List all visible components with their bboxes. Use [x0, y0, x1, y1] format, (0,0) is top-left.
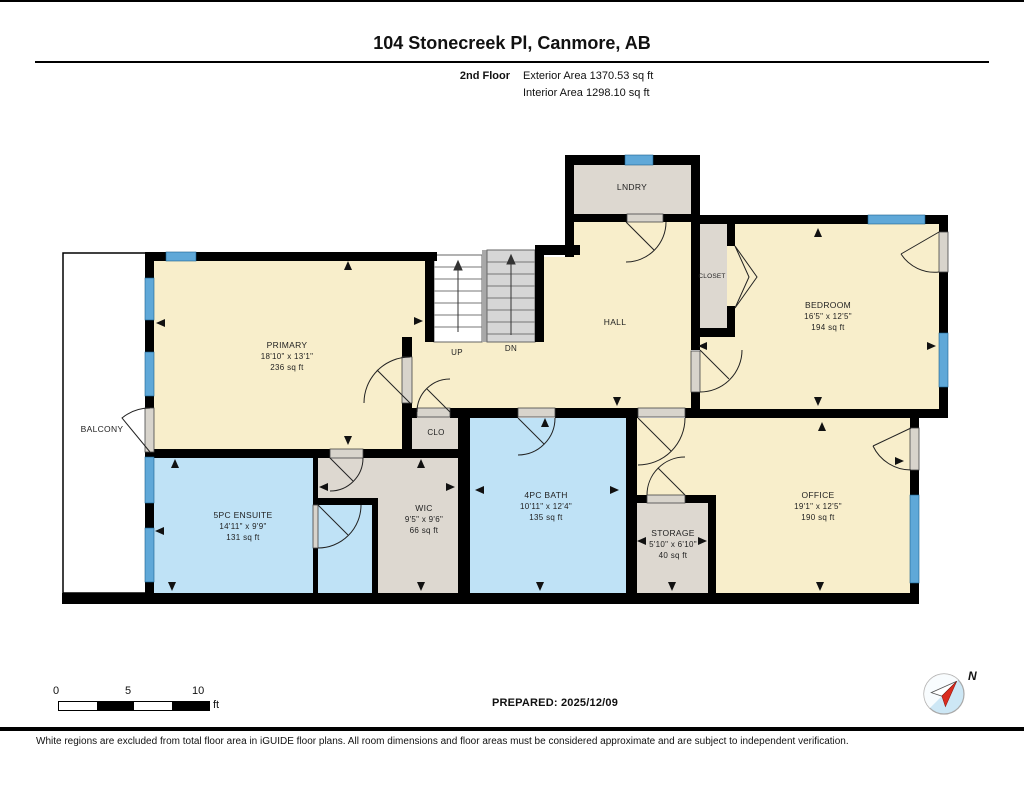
scale-tick-0: 0 [53, 685, 59, 697]
scale-tick-10: 10 [192, 685, 204, 697]
room-label-balcony: BALCONY [81, 424, 124, 435]
room-label-closet: CLOSET [698, 271, 725, 282]
room-label-primary: PRIMARY 18'10" x 13'1" 236 sq ft [261, 340, 314, 373]
room-label-wic: WIC 9'5" x 9'6" 66 sq ft [405, 503, 443, 536]
footer-divider [0, 727, 1024, 731]
compass-north-label: N [968, 669, 977, 683]
prepared-date: PREPARED: 2025/12/09 [405, 697, 705, 709]
stairs-dn-label: DN [505, 343, 517, 354]
room-label-bath: 4PC BATH 10'11" x 12'4" 135 sq ft [520, 490, 572, 523]
room-label-lndry: LNDRY [617, 182, 647, 193]
compass-icon: N [916, 664, 986, 724]
stairs-up-label: UP [451, 347, 463, 358]
room-label-office: OFFICE 19'1" x 12'5" 190 sq ft [794, 490, 842, 523]
room-label-hall: HALL [604, 317, 626, 328]
room-label-ensuite: 5PC ENSUITE 14'11" x 9'9" 131 sq ft [213, 510, 272, 543]
scale-unit-label: ft [213, 699, 219, 711]
floor-plan-page: 104 Stonecreek Pl, Canmore, AB 2nd Floor… [0, 0, 1024, 791]
room-label-storage: STORAGE 5'10" x 6'10" 40 sq ft [649, 528, 697, 561]
staircase [434, 250, 535, 342]
scale-tick-5: 5 [125, 685, 131, 697]
room-label-bedroom: BEDROOM 16'5" x 12'5" 194 sq ft [804, 300, 852, 333]
disclaimer-text: White regions are excluded from total fl… [36, 736, 996, 747]
floor-plan-drawing [0, 0, 1024, 791]
room-label-clo: CLO [427, 427, 444, 438]
scale-bar [58, 701, 210, 711]
room-fills [63, 165, 939, 593]
